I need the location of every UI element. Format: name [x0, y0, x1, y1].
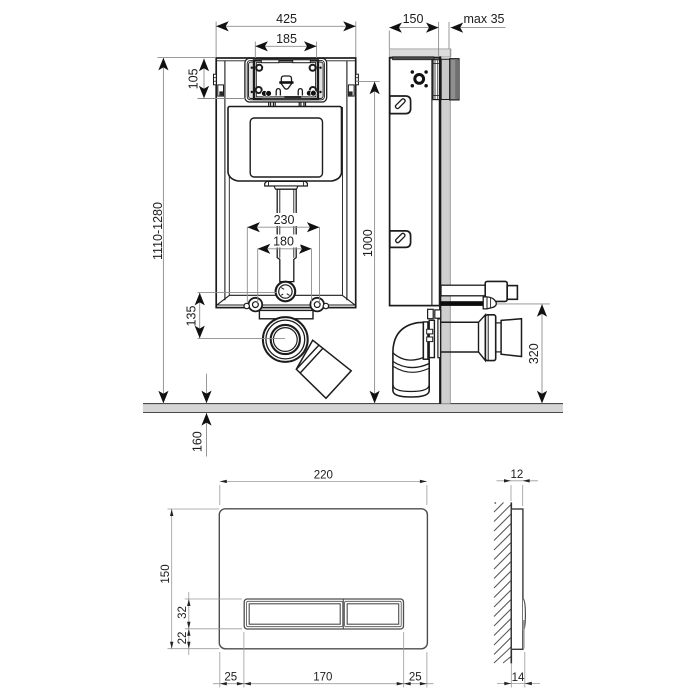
svg-text:150: 150 [403, 12, 424, 26]
svg-text:425: 425 [276, 12, 297, 26]
svg-text:22: 22 [177, 632, 189, 645]
svg-text:25: 25 [224, 671, 237, 683]
svg-text:max 35: max 35 [464, 12, 505, 26]
svg-text:220: 220 [314, 469, 333, 481]
svg-text:25: 25 [409, 671, 422, 683]
svg-text:320: 320 [527, 343, 541, 364]
svg-text:1110-1280: 1110-1280 [151, 202, 165, 260]
svg-text:1000: 1000 [361, 229, 375, 257]
svg-text:160: 160 [191, 431, 205, 452]
svg-text:230: 230 [274, 213, 295, 227]
svg-text:12: 12 [511, 469, 524, 481]
svg-text:135: 135 [185, 306, 199, 327]
svg-text:170: 170 [313, 671, 332, 683]
svg-text:185: 185 [276, 32, 297, 46]
svg-text:150: 150 [160, 564, 172, 583]
svg-text:14: 14 [512, 672, 525, 684]
svg-text:32: 32 [177, 606, 189, 619]
svg-text:105: 105 [186, 68, 200, 89]
svg-text:180: 180 [273, 235, 294, 249]
